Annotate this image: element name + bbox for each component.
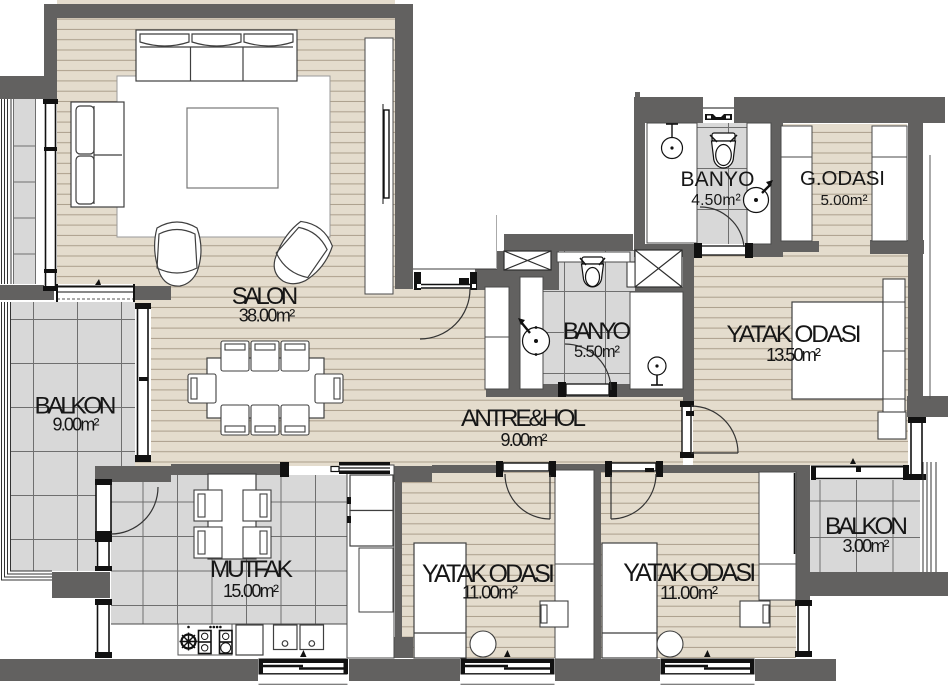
svg-text:15.00m²: 15.00m²: [223, 581, 279, 601]
svg-text:9.00m²: 9.00m²: [53, 415, 100, 435]
svg-text:9.00m²: 9.00m²: [501, 430, 548, 450]
svg-text:11.00m²: 11.00m²: [660, 582, 718, 603]
svg-text:11.00m²: 11.00m²: [462, 582, 518, 603]
svg-text:ANTRE&HOL: ANTRE&HOL: [461, 405, 586, 432]
svg-text:BANYO: BANYO: [681, 168, 755, 191]
svg-text:5.00m²: 5.00m²: [821, 192, 868, 209]
svg-text:4.50m²: 4.50m²: [691, 192, 741, 209]
svg-text:13.50m²: 13.50m²: [766, 344, 821, 365]
svg-text:G.ODASI: G.ODASI: [800, 167, 885, 190]
svg-text:5.50m²: 5.50m²: [574, 343, 621, 361]
svg-text:38.00m²: 38.00m²: [239, 306, 296, 326]
svg-text:3.00m²: 3.00m²: [843, 536, 890, 556]
svg-text:BANYO: BANYO: [563, 318, 631, 345]
svg-text:MUTFAK: MUTFAK: [210, 556, 294, 583]
